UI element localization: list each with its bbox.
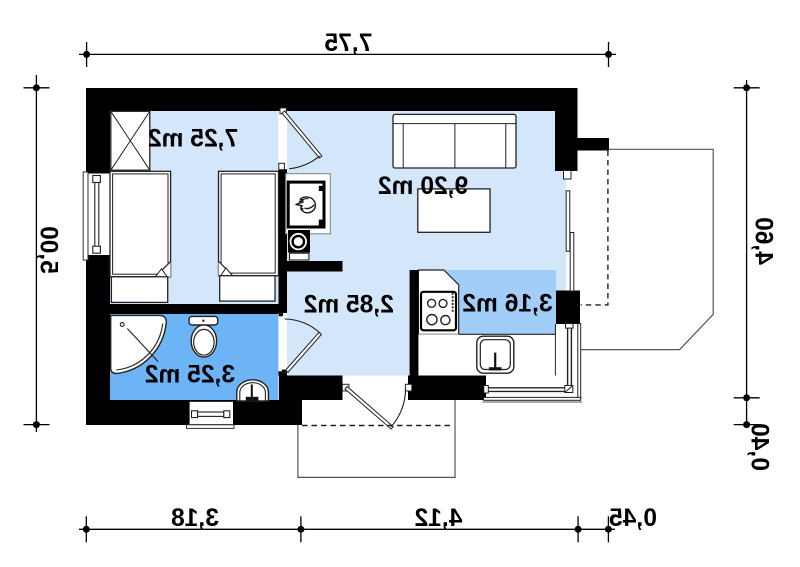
svg-text:0,45: 0,45 (609, 505, 657, 532)
svg-text:3,16 m2: 3,16 m2 (462, 291, 552, 318)
svg-text:9,20 m2: 9,20 m2 (378, 173, 468, 200)
svg-text:2,85 m2: 2,85 m2 (304, 291, 394, 318)
svg-text:4,60: 4,60 (750, 217, 777, 265)
svg-text:5,00: 5,00 (35, 226, 62, 274)
svg-text:3,25 m2: 3,25 m2 (145, 362, 235, 389)
svg-text:0,40: 0,40 (745, 423, 772, 471)
svg-text:7,75: 7,75 (325, 30, 373, 57)
svg-text:3,18: 3,18 (171, 505, 219, 532)
svg-text:4,12: 4,12 (415, 505, 463, 532)
svg-text:7,25 m2: 7,25 m2 (148, 125, 238, 152)
